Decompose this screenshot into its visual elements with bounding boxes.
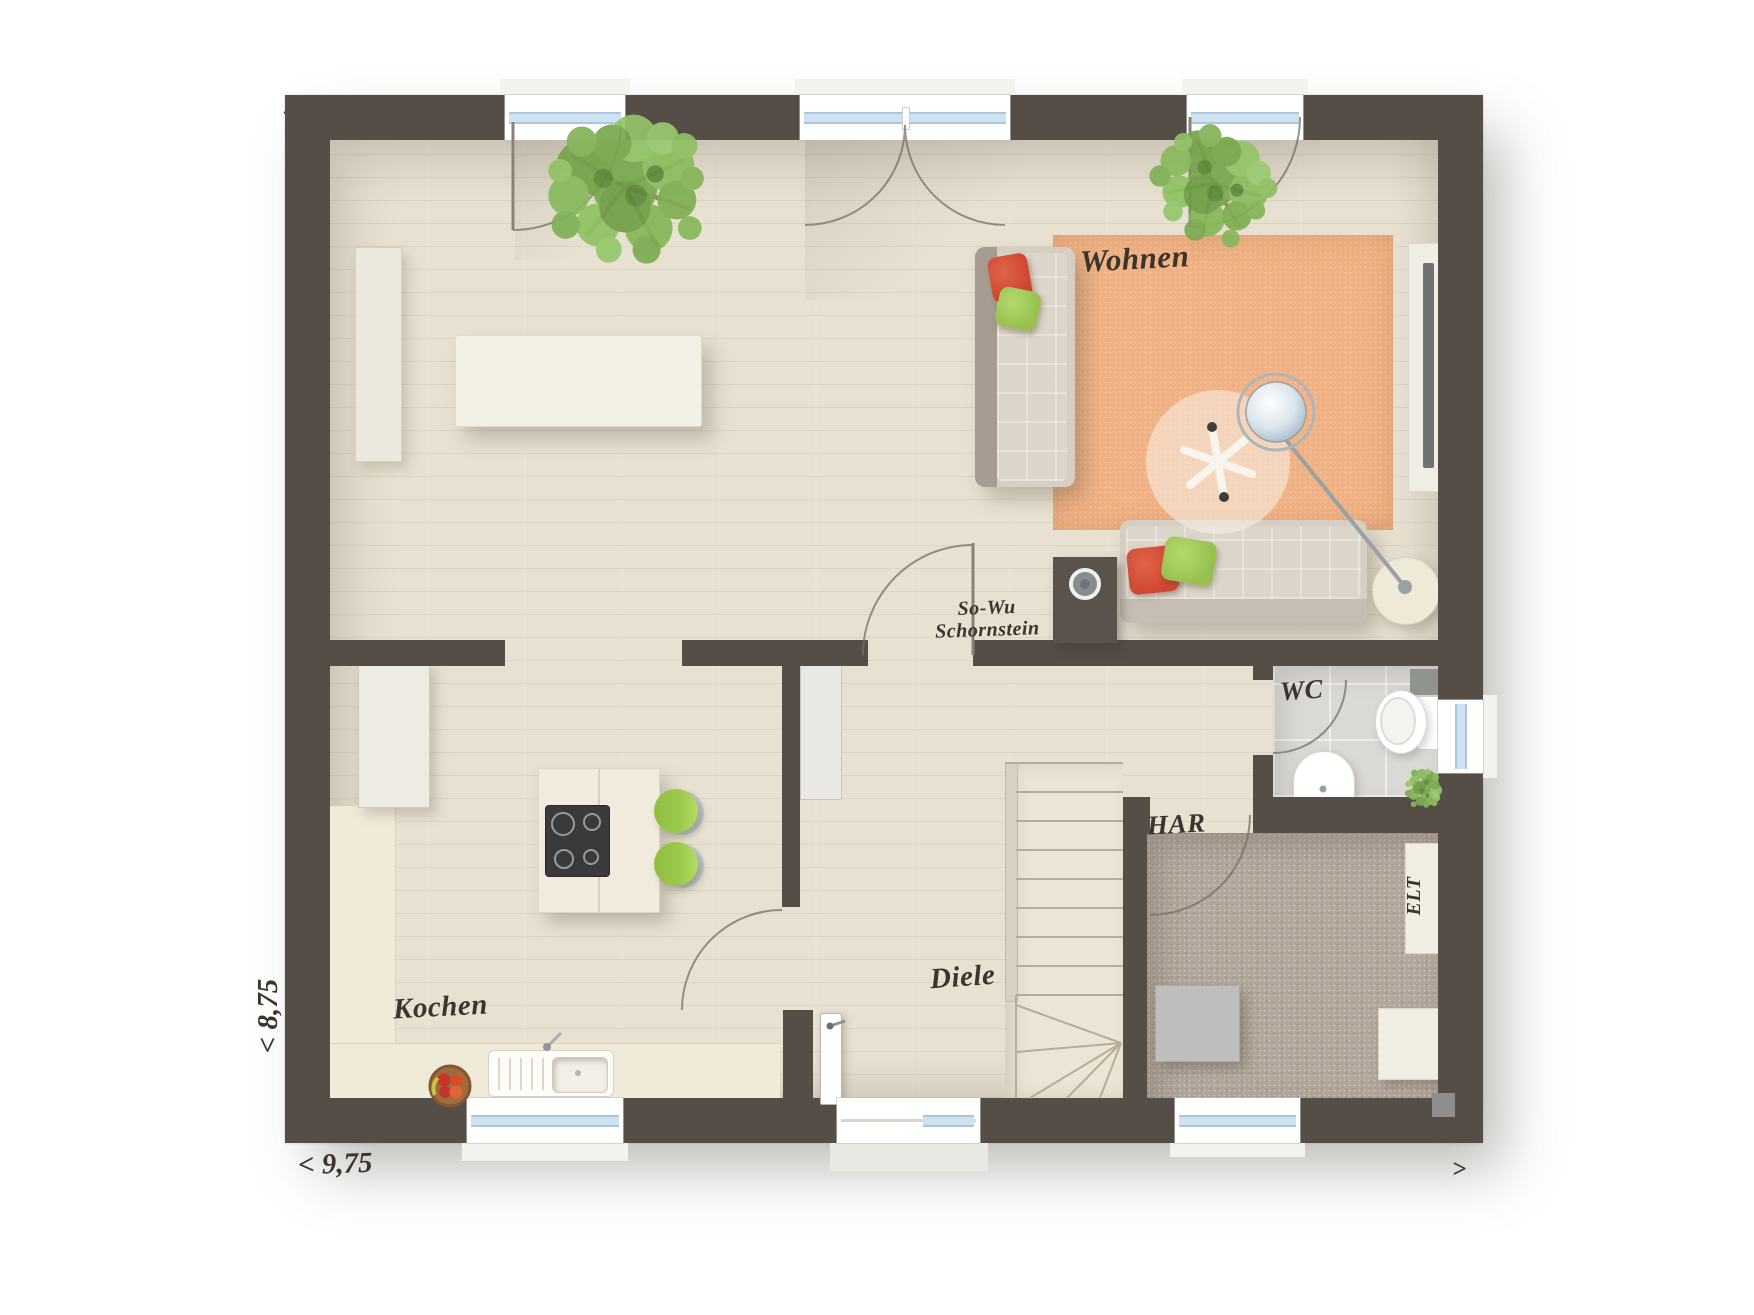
entry-stoop xyxy=(830,1143,988,1171)
wc-window xyxy=(1438,700,1483,773)
tv-screen xyxy=(1423,263,1434,468)
cooktop xyxy=(545,805,610,877)
window-glazing xyxy=(471,1115,619,1127)
room-label-har: HAR xyxy=(1146,807,1206,841)
wall-exterior-left xyxy=(285,95,330,1143)
coffee-table-halo xyxy=(1146,390,1290,534)
patio-double-door xyxy=(800,95,1010,140)
dimension-height: < 8,75 xyxy=(252,936,284,1096)
window-sill-pad xyxy=(462,1143,628,1161)
window-glazing xyxy=(1191,112,1299,124)
entry-door xyxy=(837,1098,980,1143)
wall-kitchen-stub xyxy=(783,1010,813,1098)
page: { "plan": { "labels": { "wohnen": "Wohne… xyxy=(0,0,1754,1315)
wall-wc-bottom xyxy=(1253,797,1438,833)
window-glazing xyxy=(1179,1115,1296,1127)
light-wedge xyxy=(1190,140,1320,260)
dining-table xyxy=(455,335,702,427)
light-wedge xyxy=(515,140,665,260)
stairs-floor xyxy=(1005,763,1123,1098)
corner-duct xyxy=(1432,1093,1455,1117)
entry-door-leaf xyxy=(820,1013,842,1105)
wall-kitchen-right xyxy=(782,666,800,907)
pillow-green xyxy=(1160,535,1218,587)
wall-wc-left-upper xyxy=(1253,666,1273,680)
wall-exterior-right xyxy=(1438,95,1483,1143)
sofa-seat-front xyxy=(1120,599,1367,623)
room-label-wc: WC xyxy=(1279,674,1324,708)
room-label-elt: ELT xyxy=(1403,871,1433,921)
wall-living-divider xyxy=(973,640,1438,666)
freezer-cabinet xyxy=(1378,1008,1439,1080)
window-sill-pad xyxy=(1170,1143,1305,1157)
window-sill-pad xyxy=(1483,695,1497,778)
floor-plan: Wohnen So-Wu Schornstein WC HAR ELT Diel… xyxy=(285,95,1483,1143)
terrace-door-window xyxy=(505,95,625,140)
terrace-pad xyxy=(1182,79,1308,95)
door-mullion xyxy=(902,107,910,130)
dining-sideboard xyxy=(355,247,402,462)
dimension-width: < 9,75 xyxy=(297,1147,373,1183)
wall-dining-divider xyxy=(682,640,868,666)
kitchen-tall-cabinet xyxy=(358,663,430,808)
side-table xyxy=(1372,557,1440,625)
window-glazing xyxy=(1455,704,1467,769)
pillow-green xyxy=(993,285,1042,333)
bar-stool xyxy=(654,842,698,886)
terrace-pad xyxy=(500,79,630,95)
har-window xyxy=(1175,1098,1300,1143)
sink-basin xyxy=(552,1057,608,1093)
room-label-schornstein: So-Wu Schornstein xyxy=(921,596,1052,644)
toilet-bowl xyxy=(1375,690,1427,754)
bar-stool xyxy=(654,789,698,833)
room-label-wohnen: Wohnen xyxy=(1079,238,1190,280)
stair-stringer-wall xyxy=(1005,763,1018,1002)
compass-arrow-right: > xyxy=(1452,1156,1466,1184)
kitchen-sink xyxy=(488,1050,614,1097)
wall-kitchen-top xyxy=(327,640,505,666)
terrace-pad xyxy=(795,79,1015,95)
wall-wc-left-lower xyxy=(1253,755,1273,797)
chimney-block xyxy=(1053,557,1117,643)
sink-drainboard xyxy=(498,1058,544,1090)
wall-har-left xyxy=(1123,797,1147,1098)
room-label-kochen: Kochen xyxy=(392,989,488,1027)
garden-door-window xyxy=(1187,95,1303,140)
window-glazing xyxy=(509,112,621,124)
label-schornstein: Schornstein xyxy=(922,617,1053,643)
wc-duct xyxy=(1410,669,1438,695)
washing-machine xyxy=(1155,985,1240,1062)
open-door-panel xyxy=(800,665,842,800)
kitchen-window xyxy=(467,1098,623,1143)
entry-sidelight xyxy=(923,1115,974,1127)
room-label-diele: Diele xyxy=(929,959,996,996)
